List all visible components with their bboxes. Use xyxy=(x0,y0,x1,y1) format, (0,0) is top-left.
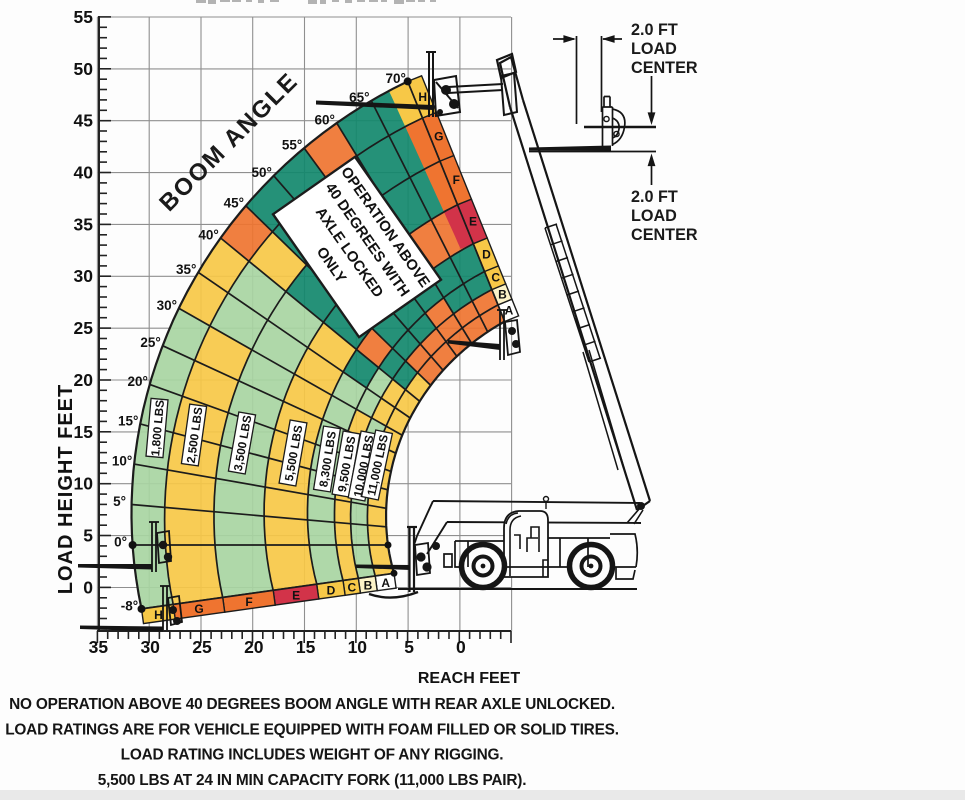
svg-text:5,500 LBS AT 24 IN MIN CAPACIT: 5,500 LBS AT 24 IN MIN CAPACITY FORK (11… xyxy=(98,772,527,789)
svg-text:B: B xyxy=(364,578,373,592)
svg-text:2.0 FT: 2.0 FT xyxy=(631,21,678,39)
svg-text:25°: 25° xyxy=(140,335,160,350)
svg-text:55°: 55° xyxy=(282,138,302,153)
svg-text:LOAD HEIGHT FEET: LOAD HEIGHT FEET xyxy=(55,384,77,594)
svg-text:A: A xyxy=(381,576,390,590)
svg-text:70°: 70° xyxy=(385,71,405,86)
svg-text:NO OPERATION ABOVE 40 DEGREES: NO OPERATION ABOVE 40 DEGREES BOOM ANGLE… xyxy=(9,696,615,713)
svg-text:50°: 50° xyxy=(251,165,271,180)
svg-text:5: 5 xyxy=(404,637,414,657)
svg-text:30: 30 xyxy=(74,266,94,286)
svg-text:15: 15 xyxy=(296,637,316,657)
svg-text:LOAD: LOAD xyxy=(631,40,677,58)
svg-text:LOAD RATING INCLUDES WEIGHT OF: LOAD RATING INCLUDES WEIGHT OF ANY RIGGI… xyxy=(121,747,504,764)
svg-text:CENTER: CENTER xyxy=(631,59,698,77)
svg-text:F: F xyxy=(245,595,252,609)
svg-text:2.0 FT: 2.0 FT xyxy=(631,188,678,206)
svg-text:H: H xyxy=(154,608,163,622)
svg-text:5: 5 xyxy=(83,526,93,546)
svg-text:CENTER: CENTER xyxy=(631,226,698,244)
svg-text:30°: 30° xyxy=(157,298,177,313)
svg-text:25: 25 xyxy=(74,318,94,338)
svg-text:40: 40 xyxy=(74,163,94,183)
svg-text:0: 0 xyxy=(456,637,466,657)
svg-text:35°: 35° xyxy=(176,262,196,277)
svg-text:40°: 40° xyxy=(198,228,218,243)
svg-text:25: 25 xyxy=(192,637,212,657)
svg-text:LOAD RATINGS ARE FOR VEHICLE E: LOAD RATINGS ARE FOR VEHICLE EQUIPPED WI… xyxy=(5,721,619,738)
svg-text:C: C xyxy=(347,581,356,595)
svg-text:D: D xyxy=(482,248,491,262)
svg-text:E: E xyxy=(469,214,477,228)
svg-text:C: C xyxy=(491,271,500,285)
svg-text:5°: 5° xyxy=(113,494,126,509)
svg-text:LOAD: LOAD xyxy=(631,207,677,225)
svg-text:30: 30 xyxy=(140,637,160,657)
svg-text:20: 20 xyxy=(244,637,264,657)
svg-text:35: 35 xyxy=(74,214,94,234)
svg-text:G: G xyxy=(434,130,443,144)
svg-text:-8°: -8° xyxy=(121,598,138,613)
svg-text:H: H xyxy=(418,90,427,104)
svg-text:10°: 10° xyxy=(112,454,132,469)
svg-text:F: F xyxy=(453,173,460,187)
svg-text:45°: 45° xyxy=(224,195,244,210)
svg-text:0°: 0° xyxy=(114,535,127,550)
svg-text:0: 0 xyxy=(83,577,93,597)
svg-text:10: 10 xyxy=(348,637,368,657)
svg-text:B: B xyxy=(498,287,507,301)
svg-text:60°: 60° xyxy=(314,113,334,128)
svg-text:55: 55 xyxy=(74,7,94,27)
svg-text:15°: 15° xyxy=(118,413,138,428)
svg-text:G: G xyxy=(194,602,203,616)
svg-text:D: D xyxy=(327,584,336,598)
svg-text:E: E xyxy=(292,589,300,603)
svg-text:REACH FEET: REACH FEET xyxy=(418,670,520,687)
svg-text:20°: 20° xyxy=(127,374,147,389)
svg-text:45: 45 xyxy=(74,111,94,131)
svg-text:50: 50 xyxy=(74,59,94,79)
svg-text:35: 35 xyxy=(89,637,109,657)
